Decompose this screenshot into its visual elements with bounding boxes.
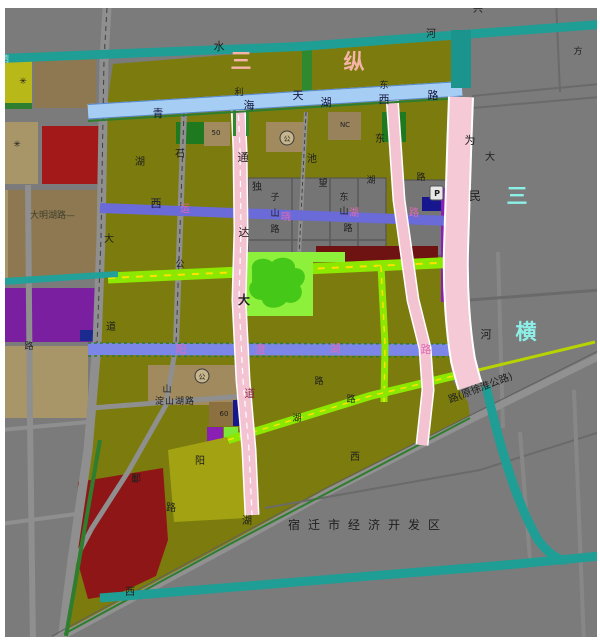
road-west-char: 湖 [135, 156, 145, 168]
road-tianhu-char: 天 [293, 89, 304, 102]
road-middle-char: 运 [180, 203, 190, 215]
road-tongda-char: 通 [238, 151, 249, 164]
road-label-char: 山 [162, 384, 171, 395]
road-label-char: 西 [125, 587, 135, 598]
corridor-horizontal-label-1: 三 [507, 184, 528, 208]
road-dongshan-char: 山 [339, 206, 348, 217]
road-middle-char: 晓 [281, 211, 291, 223]
road-dianshanhu-label: 淀山湖路 [155, 395, 195, 407]
road-label-char: 独 [252, 180, 262, 193]
road-label-char: 大 [485, 150, 495, 163]
parcel-value-label: 60 [220, 410, 229, 418]
road-label-char: 路 [270, 223, 279, 235]
river-weimin-char: 河 [481, 328, 492, 341]
road-dongshan-char: 东 [339, 191, 348, 203]
road-label-char: 路 [314, 375, 323, 387]
road-label-char: 鄱 [131, 472, 141, 485]
road-yangchenghu-char: 澄 [255, 342, 266, 356]
corridor-horizontal-label-2: 横 [516, 320, 537, 344]
zoning-map: 水 河 兴 方 三 纵 清 青 海 利 天 湖 西 路 东 东 石 池 独 子 … [0, 0, 600, 644]
corridor-vertical-label-1: 三 [231, 49, 252, 73]
road-label-char: 西 [350, 452, 360, 463]
road-label-char: 湖 [292, 413, 301, 424]
road-label-char: 池 [307, 152, 317, 165]
parcel-value-label: 50 [212, 129, 221, 137]
parcel-brown-west [8, 190, 100, 278]
river-weimin-char: 民 [469, 189, 481, 203]
river-label-char: 河 [426, 28, 436, 40]
river-label-char: 水 [214, 40, 225, 53]
region-title: 宿迁市经济开发区 [288, 517, 448, 532]
road-tongda-char: 道 [245, 386, 256, 400]
road-west-char: 大 [104, 232, 114, 245]
road-label-char: 方 [573, 45, 582, 57]
road-tongda-char: 达 [239, 226, 250, 239]
road-tianhu-char: 路 [428, 89, 439, 102]
road-qinghai-char: 青 [153, 107, 164, 120]
road-middle-char: 路 [409, 206, 419, 219]
road-label-char: 石 [175, 149, 185, 160]
road-label-char: 东 [375, 132, 385, 145]
road-yangchenghu-char: 湖 [330, 342, 341, 355]
road-label-char: 东 [379, 79, 388, 91]
road-west-char: 路 [24, 340, 33, 352]
circle-icon-glyph: 公 [199, 373, 206, 381]
road-tongda-char: 大 [238, 292, 250, 307]
road-tianhu-char: 西 [379, 93, 390, 106]
road-label-char: 路 [166, 501, 176, 514]
road-middle-char: 湖 [349, 207, 359, 219]
parcel-value-label: NC [340, 121, 350, 129]
road-label-char: 阳 [195, 455, 205, 467]
river-weimin-char: 为 [465, 134, 476, 147]
road-label-char: 山 [270, 208, 279, 219]
road-label-char: 湖 [366, 175, 375, 186]
zoning-map-canvas: 水 河 兴 方 三 纵 清 青 海 利 天 湖 西 路 东 东 石 池 独 子 … [0, 0, 600, 644]
circle-icon-glyph: 公 [284, 135, 291, 143]
parking-icon-letter: P [434, 189, 440, 198]
road-tianhu-char: 湖 [321, 96, 332, 109]
road-dongshan-char: 路 [343, 222, 352, 234]
corridor-vertical-label-2: 纵 [344, 50, 365, 74]
road-label-char: 利 [234, 86, 243, 98]
parcel-label-daminghu: 大明湖路— [30, 209, 75, 221]
road-label-char: 子 [270, 192, 279, 203]
road-label-char: 望 [318, 177, 327, 189]
road-yangchenghu-char: 阳 [176, 343, 187, 356]
road-yangchenghu-char: 路 [421, 343, 432, 356]
road-yangchenghu [88, 349, 468, 350]
road-label-char: 路 [346, 393, 355, 405]
road-label-char: 路 [416, 171, 425, 183]
road-middle-char: 西 [151, 197, 162, 210]
road-qinghai-char: 海 [244, 98, 255, 112]
symbol-marker: ✳ [19, 77, 27, 87]
symbol-marker: ✳ [13, 140, 21, 150]
road-label-char: 湖 [242, 515, 252, 527]
road-label-char: 公 [175, 259, 184, 270]
road-west-char: 道 [106, 320, 116, 333]
